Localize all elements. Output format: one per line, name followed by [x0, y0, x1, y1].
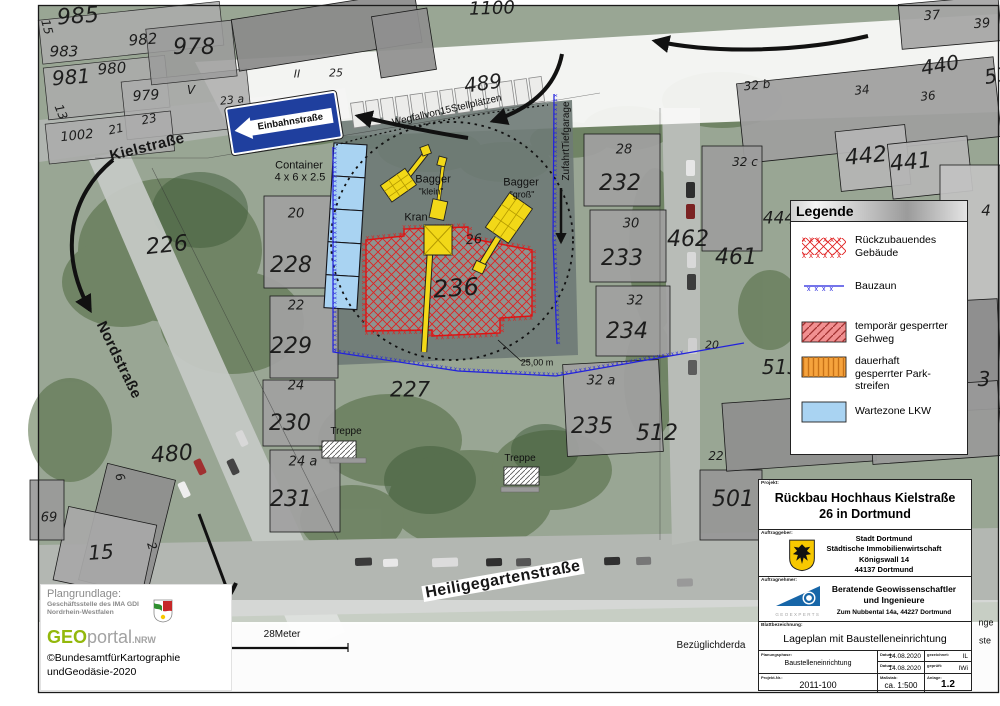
plangrundlage-label: Plangrundlage: — [47, 588, 225, 600]
source-org-line: Nordrhein-Westfalen — [47, 609, 225, 617]
legend: Legende xxxxxx xxxxxx Rückzubauendes Geb… — [790, 200, 968, 455]
auftraggeber-label: Auftraggeber: — [761, 531, 793, 536]
title-block-client-row: Auftraggeber: Stadt Dortmund Städtische … — [759, 530, 971, 577]
geoexperts-logo-icon — [774, 584, 822, 608]
nrw-coat-of-arms-icon — [153, 599, 173, 623]
copyright-line: undGeodäsie-2020 — [47, 666, 225, 680]
auftragnehmer-label: Auftragnehmer: — [761, 578, 797, 583]
legend-label: Wartezone LKW — [855, 405, 957, 418]
date-checked: 14.08.2020 — [878, 665, 921, 672]
title-block-contractor-row: Auftragnehmer: GEOEXPERTS Beratende Geow… — [759, 577, 971, 622]
title-block-sheet-row: Blattbezeichnung: Lageplan mit Baustelle… — [759, 622, 971, 651]
client-line: Königswall 14 — [826, 555, 941, 566]
legend-swatch-demolition-icon: xxxxxx xxxxxx — [801, 233, 847, 259]
legend-label: temporär gesperrter Gehweg — [855, 320, 957, 345]
attachment-number: 1.2 — [925, 679, 971, 690]
copyright-note: ©BundesamtfürKartographie undGeodäsie-20… — [47, 652, 225, 679]
geoportal-logo-portal: portal — [87, 627, 132, 647]
legend-swatch-truck-zone-icon — [801, 399, 847, 425]
title-block: Projekt: Rückbau Hochhaus Kielstraße 26 … — [758, 479, 972, 691]
client-line: Stadt Dortmund — [826, 534, 941, 545]
legend-item-truck-zone: Wartezone LKW — [791, 399, 967, 425]
source-organisation: Geschäftsstelle des IMA GDI Nordrhein-We… — [47, 601, 225, 618]
title-block-phase-row: Planungsphase: Baustelleneinrichtung Dat… — [759, 651, 971, 674]
dortmund-coat-of-arms-icon — [788, 538, 816, 572]
phase-value: Baustelleneinrichtung — [759, 660, 877, 667]
contractor-line: und Ingenieure — [832, 595, 956, 606]
legend-label: dauerhaft gesperrter Park-streifen — [855, 355, 943, 393]
legend-label: Bauzaun — [855, 280, 957, 293]
legend-swatch-fence-icon: xxxx — [801, 277, 847, 297]
legend-title: Legende — [791, 201, 967, 222]
legend-item-walkway: temporär gesperrter Gehweg — [791, 319, 967, 349]
legend-item-parking: dauerhaft gesperrter Park-streifen — [791, 354, 967, 396]
project-title: Rückbau Hochhaus Kielstraße 26 in Dortmu… — [759, 480, 971, 523]
geoportal-logo: GEOportal.NRW — [47, 627, 225, 648]
legend-item-fence: xxxx Bauzaun — [791, 277, 967, 299]
legend-label: Rückzubauendes Gebäude — [855, 234, 957, 259]
drawn-by: IL — [925, 653, 968, 660]
site-plan-sheet: x x x x x x x x x x x x x x x x x x x x … — [0, 0, 1000, 706]
svg-text:xxxxxx: xxxxxx — [802, 235, 844, 244]
legend-swatch-walkway-icon — [801, 319, 847, 345]
legend-swatch-parking-icon — [801, 354, 847, 380]
checked-by: IWi — [925, 665, 968, 672]
contractor-street: Zum Nubbental 14a, 44227 Dortmund — [832, 609, 956, 618]
client-line: 44137 Dortmund — [826, 565, 941, 576]
contractor-line: Beratende Geowissenschaftler — [832, 584, 956, 595]
blattbezeichnung-label: Blattbezeichnung: — [761, 623, 803, 628]
scale-value: ca. 1:500 — [878, 681, 924, 690]
source-org-line: Geschäftsstelle des IMA GDI — [47, 601, 225, 609]
project-number: 2011-100 — [759, 680, 877, 690]
date-drawn: 14.08.2020 — [878, 653, 921, 660]
title-block-project-row: Projekt: Rückbau Hochhaus Kielstraße 26 … — [759, 480, 971, 530]
geoportal-logo-nrw: .NRW — [132, 635, 156, 645]
map-source-box: Plangrundlage: Geschäftsstelle des IMA G… — [40, 584, 232, 691]
svg-text:xxxxxx: xxxxxx — [802, 251, 844, 259]
projekt-label: Projekt: — [761, 481, 779, 486]
client-line: Städtische Immobilienwirtschaft — [826, 544, 941, 555]
client-address: Stadt Dortmund Städtische Immobilienwirt… — [826, 534, 941, 576]
geoportal-logo-geo: GEO — [47, 627, 87, 647]
planungsphase-label: Planungsphase: — [761, 652, 792, 657]
massstab-label: Maßstab: — [880, 675, 898, 680]
legend-item-demolition: xxxxxx xxxxxx Rückzubauendes Gebäude — [791, 233, 967, 273]
contractor-address: Beratende Geowissenschaftler und Ingenie… — [832, 584, 956, 618]
svg-text:xxxx: xxxx — [807, 286, 837, 293]
geoexperts-caption: GEOEXPERTS — [774, 613, 822, 618]
copyright-line: ©BundesamtfürKartographie — [47, 652, 225, 666]
title-block-number-row: Projekt-Nr.: 2011-100 Maßstab: ca. 1:500… — [759, 674, 971, 692]
